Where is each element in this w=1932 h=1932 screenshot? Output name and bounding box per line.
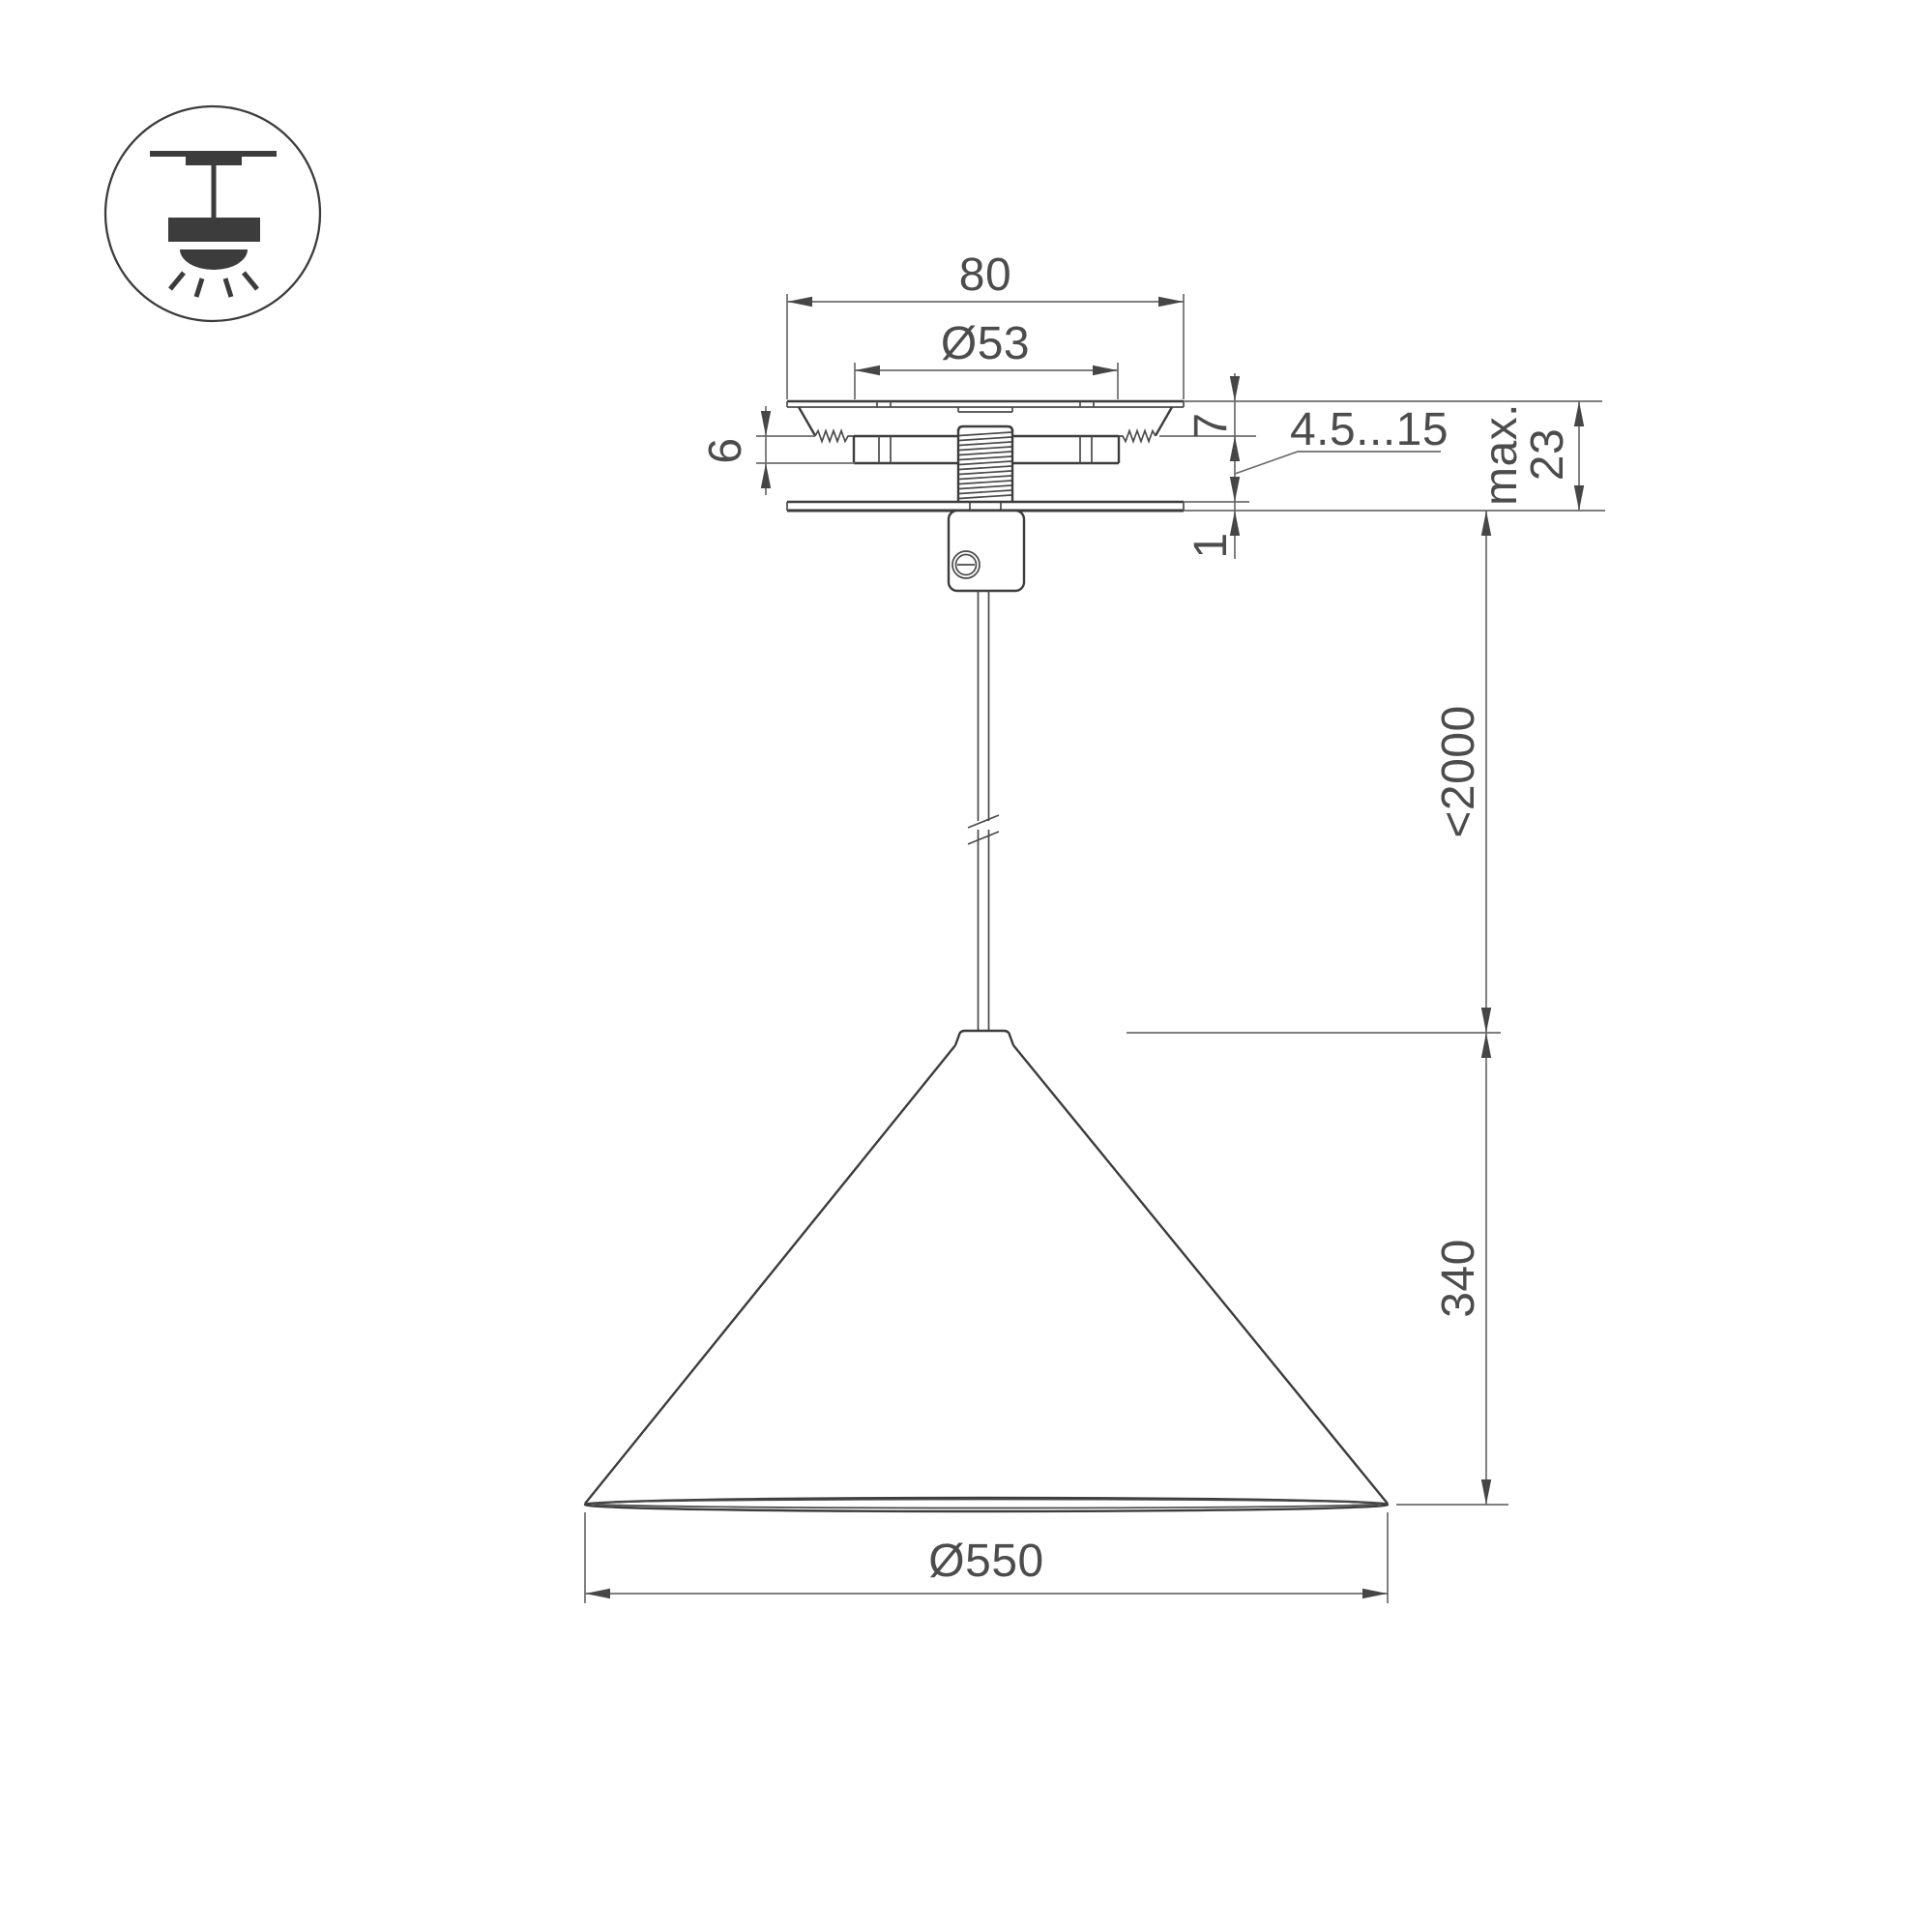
icon-light-rays xyxy=(170,273,257,297)
drawing-sheet: 80 Ø53 7 1 4.5...15 6 xyxy=(0,0,1932,1932)
dim-label-2000: <2000 xyxy=(1433,705,1484,837)
dim-label-23: 23 xyxy=(1522,428,1573,481)
dim-label-340: 340 xyxy=(1433,1239,1484,1318)
dim-label-max: max. xyxy=(1476,403,1527,506)
dim-label-550: Ø550 xyxy=(928,1536,1043,1587)
icon-canopy xyxy=(186,156,242,165)
dim-label-1: 1 xyxy=(1186,532,1237,558)
dim-label-80: 80 xyxy=(959,249,1011,301)
cable-break-mark xyxy=(968,815,999,828)
cone-shade xyxy=(585,1031,1388,1511)
dim-max-depth: max. 23 xyxy=(1476,401,1584,511)
icon-lamp-dome xyxy=(180,249,248,270)
dim-shade-diameter: Ø550 xyxy=(585,1512,1388,1603)
dim-suspension-length: <2000 xyxy=(1127,511,1501,1033)
dim-bracket-height: 6 xyxy=(700,406,855,495)
dim-label-6: 6 xyxy=(700,437,751,463)
shade-apex-cap xyxy=(955,1031,1013,1045)
cable-break-mark xyxy=(968,832,999,844)
cable-grip-block xyxy=(949,511,1024,591)
shade-right-edge xyxy=(1013,1045,1388,1504)
suspension-cable xyxy=(968,591,999,1032)
dim-hole-diameter: Ø53 xyxy=(855,318,1118,399)
canopy-section xyxy=(787,401,1184,1032)
cover-plate xyxy=(787,502,1184,511)
dim-label-7: 7 xyxy=(1186,412,1237,438)
dim-shade-height: 340 xyxy=(1396,1033,1508,1505)
shade-left-edge xyxy=(585,1045,955,1504)
dimension-drawing-canvas: 80 Ø53 7 1 4.5...15 6 xyxy=(0,0,1932,1932)
icon-lamp-body xyxy=(168,218,260,242)
dim-label-ceiling-range: 4.5...15 xyxy=(1290,404,1449,455)
threaded-stem xyxy=(958,426,1012,511)
pendant-mount-icon xyxy=(105,106,320,321)
dim-label-53: Ø53 xyxy=(941,318,1030,369)
